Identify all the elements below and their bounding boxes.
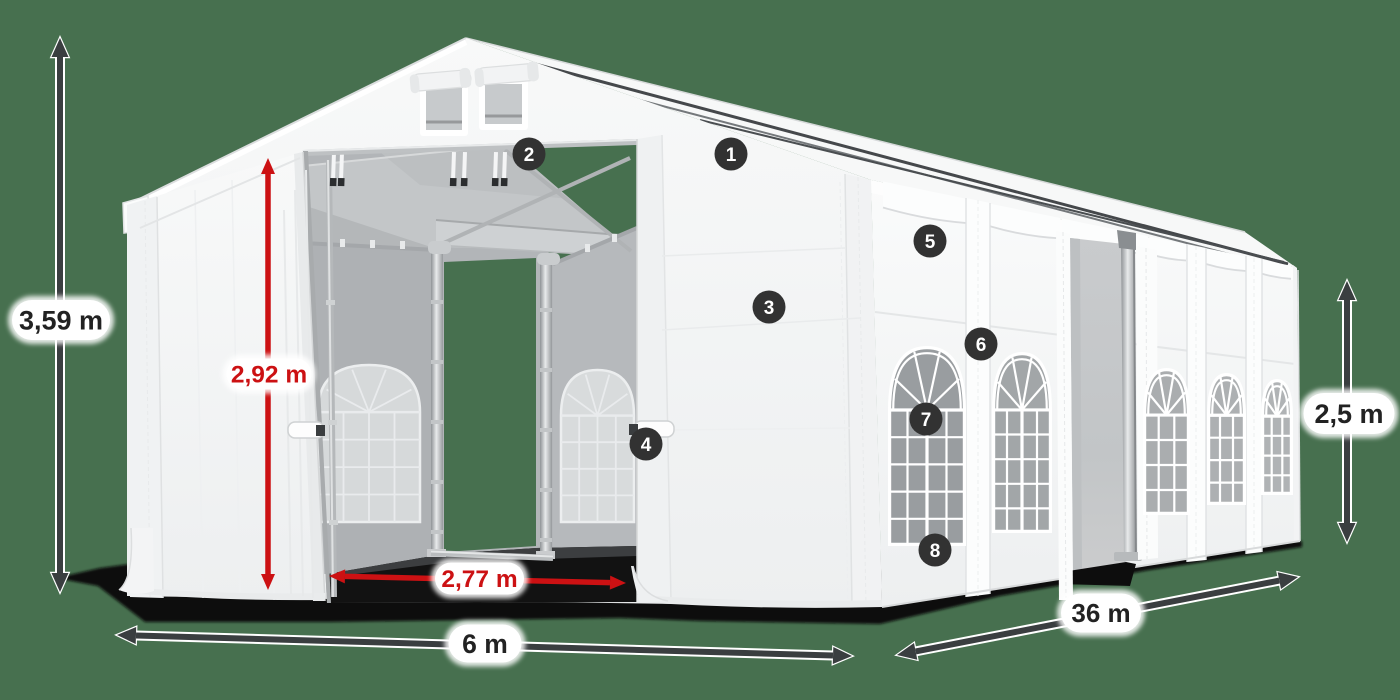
svg-text:36 m: 36 m <box>1071 598 1130 628</box>
svg-text:3,59 m: 3,59 m <box>19 306 103 336</box>
svg-text:2,5 m: 2,5 m <box>1314 399 1383 429</box>
svg-text:6 m: 6 m <box>462 629 508 659</box>
svg-text:3: 3 <box>764 298 775 319</box>
svg-text:6: 6 <box>976 335 987 356</box>
svg-text:2: 2 <box>524 145 535 166</box>
svg-text:8: 8 <box>930 541 941 562</box>
svg-text:1: 1 <box>726 145 737 166</box>
svg-text:7: 7 <box>921 410 932 431</box>
svg-text:4: 4 <box>641 435 652 456</box>
svg-text:2,92 m: 2,92 m <box>231 362 307 389</box>
svg-text:5: 5 <box>925 232 936 253</box>
svg-text:2,77 m: 2,77 m <box>441 566 517 593</box>
